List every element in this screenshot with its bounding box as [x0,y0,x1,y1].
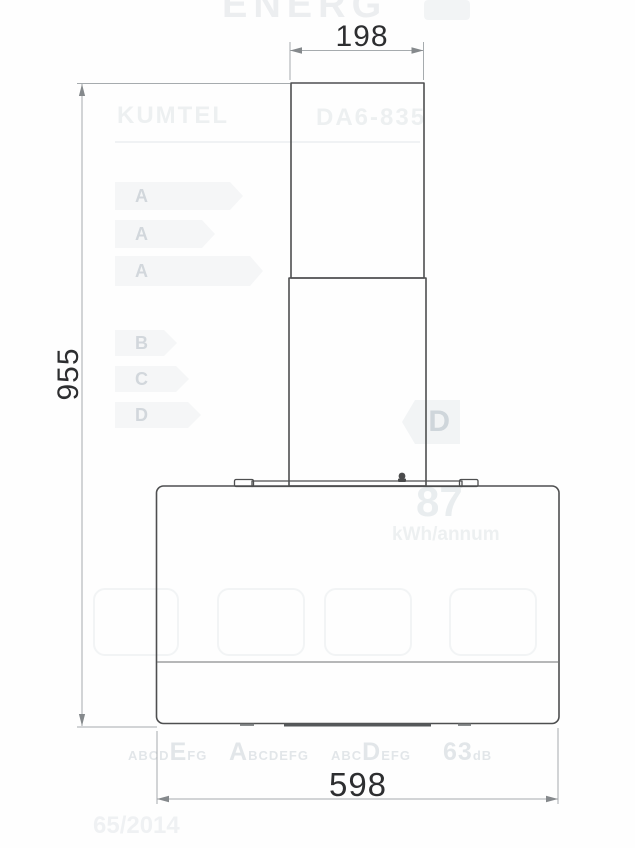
arrow-up-icon [79,84,85,96]
screw-head-icon [399,473,406,480]
dimension-arrowheads [79,47,558,802]
screw-detail [398,473,406,482]
arrow-down-icon [79,714,85,726]
dimension-lines [77,42,558,804]
dim-value-body-width: 598 [329,766,387,803]
hood-body [157,486,560,724]
chimney-upper-section [291,83,424,278]
arrow-right-icon [412,47,424,54]
dim-value-chimney-width: 198 [335,20,388,53]
arrow-right-icon [546,796,558,802]
technical-drawing-page: ENERG KUMTEL DA6-835 A A A B C D D 87 kW… [0,0,635,848]
screw-base [398,479,406,483]
dim-value-total-height: 955 [52,347,85,400]
chimney-lower-section [289,278,426,486]
hood-outline [157,83,560,724]
hood-dimension-drawing: 198 955 598 [0,0,635,848]
arrow-left-icon [290,47,302,54]
arrow-left-icon [157,796,169,802]
